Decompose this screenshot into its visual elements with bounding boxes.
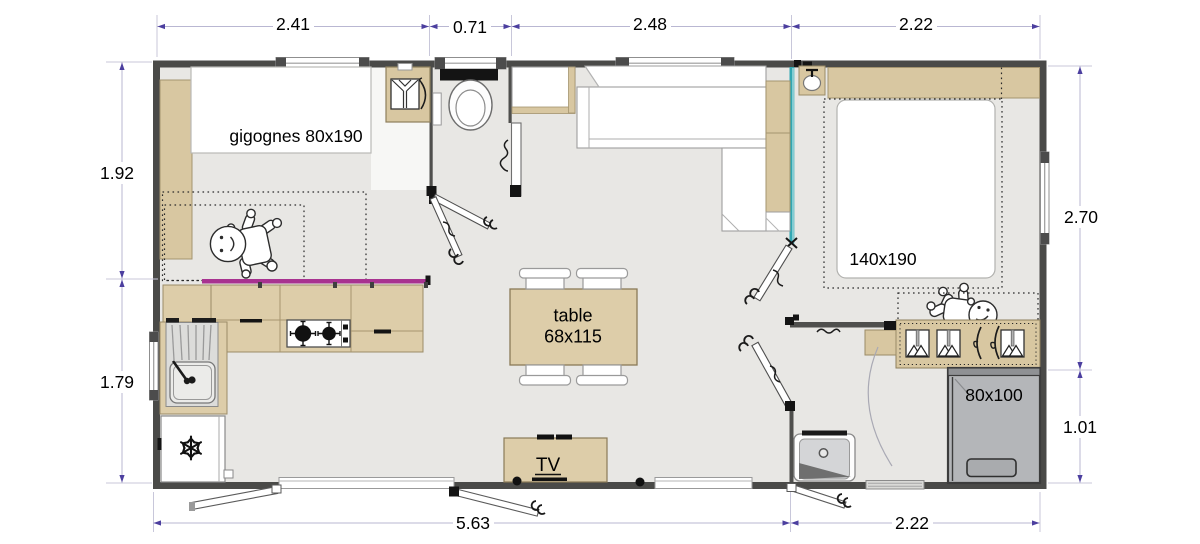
- svg-text:table: table: [553, 306, 592, 326]
- svg-text:80x100: 80x100: [965, 385, 1023, 405]
- svg-text:2.48: 2.48: [633, 14, 667, 34]
- svg-text:1.79: 1.79: [100, 372, 134, 392]
- svg-text:TV: TV: [536, 455, 561, 476]
- svg-text:0.71: 0.71: [453, 17, 487, 37]
- svg-text:1.01: 1.01: [1063, 417, 1097, 437]
- svg-text:2.70: 2.70: [1064, 207, 1098, 227]
- svg-text:2.22: 2.22: [899, 14, 933, 34]
- svg-text:2.22: 2.22: [895, 513, 929, 533]
- svg-text:68x115: 68x115: [544, 327, 602, 347]
- svg-text:1.92: 1.92: [100, 163, 134, 183]
- svg-text:gigognes 80x190: gigognes 80x190: [229, 126, 363, 146]
- svg-text:2.41: 2.41: [276, 14, 310, 34]
- svg-text:5.63: 5.63: [456, 513, 490, 533]
- svg-text:140x190: 140x190: [849, 249, 916, 269]
